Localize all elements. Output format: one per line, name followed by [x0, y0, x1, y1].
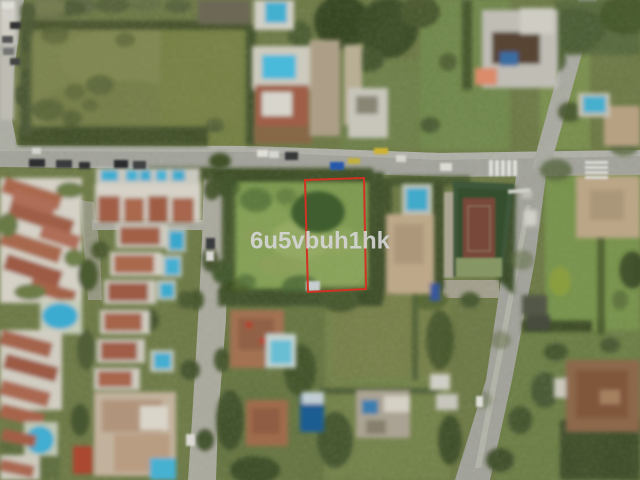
svg-text:6u5vbuh1hk: 6u5vbuh1hk [250, 228, 391, 255]
